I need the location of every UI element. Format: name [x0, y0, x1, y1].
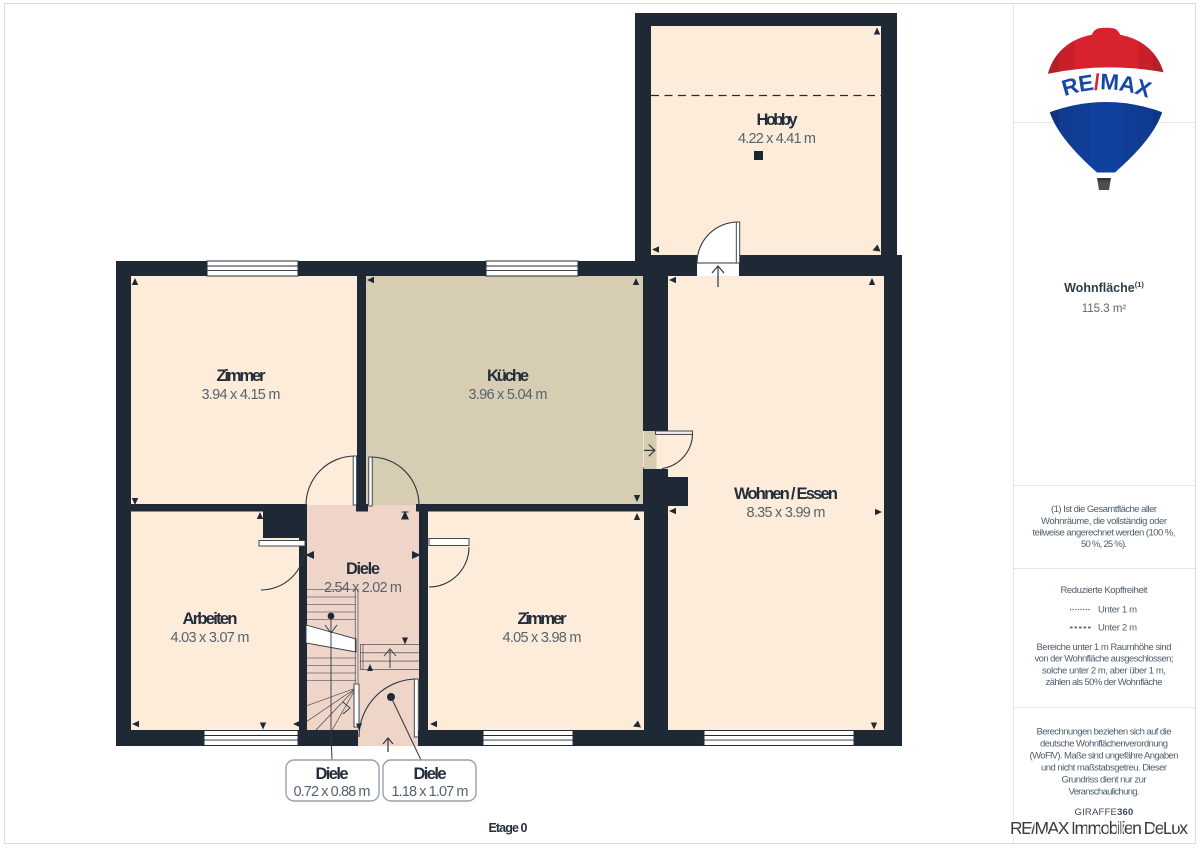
svg-text:RE/MAX Immobilien DeLux: RE/MAX Immobilien DeLux [1010, 818, 1188, 838]
svg-text:teilweise angerechnet werden (: teilweise angerechnet werden (100 %, [1033, 528, 1176, 539]
svg-text:2.54 x 2.02 m: 2.54 x 2.02 m [324, 580, 402, 596]
svg-text:Unter 1 m: Unter 1 m [1098, 605, 1137, 616]
svg-text:4.22 x 4.41 m: 4.22 x 4.41 m [738, 131, 816, 147]
svg-text:Veranschaulichung.: Veranschaulichung. [1069, 787, 1140, 798]
svg-text:Küche: Küche [487, 367, 529, 385]
svg-text:8.35 x 3.99 m: 8.35 x 3.99 m [747, 505, 826, 521]
svg-text:und nicht maßstabsgetreu. Dies: und nicht maßstabsgetreu. Dieser [1041, 763, 1167, 774]
svg-text:solche unter 2 m, aber über 1: solche unter 2 m, aber über 1 m, [1042, 665, 1166, 676]
svg-text:Diele: Diele [316, 765, 349, 783]
svg-text:Wohnräume, die vollständig ode: Wohnräume, die vollständig oder [1041, 516, 1167, 527]
svg-text:Zimmer: Zimmer [217, 367, 267, 385]
svg-text:0.72 x 0.88 m: 0.72 x 0.88 m [294, 784, 371, 800]
svg-text:Diele: Diele [414, 765, 447, 783]
svg-text:Reduzierte Kopffreiheit: Reduzierte Kopffreiheit [1061, 585, 1148, 596]
svg-text:1.18 x 1.07 m: 1.18 x 1.07 m [392, 784, 469, 800]
svg-text:4.03 x 3.07 m: 4.03 x 3.07 m [171, 630, 250, 646]
svg-text:von der Wohnfläche ausgeschlos: von der Wohnfläche ausgeschlossen; [1035, 654, 1174, 665]
svg-text:4.05 x 3.98 m: 4.05 x 3.98 m [503, 630, 582, 646]
svg-text:Grundriss dient nur zur: Grundriss dient nur zur [1062, 775, 1147, 786]
svg-text:Diele: Diele [346, 560, 380, 578]
svg-text:Zimmer: Zimmer [518, 610, 568, 628]
svg-text:3.94 x 4.15 m: 3.94 x 4.15 m [202, 387, 281, 403]
svg-text:Arbeiten: Arbeiten [183, 610, 238, 628]
svg-text:Wohnfläche(1): Wohnfläche(1) [1064, 280, 1144, 295]
svg-text:50 %, 25 %).: 50 %, 25 %). [1081, 539, 1127, 550]
svg-text:zählen als 50% der Wohnfläche: zählen als 50% der Wohnfläche [1046, 677, 1163, 688]
svg-text:GIRAFFE360: GIRAFFE360 [1074, 807, 1133, 818]
svg-text:(WoFlV). Maße sind ungefähre A: (WoFlV). Maße sind ungefähre Angaben [1030, 751, 1179, 762]
svg-text:deutsche Wohnflächenverordnung: deutsche Wohnflächenverordnung [1040, 739, 1168, 750]
svg-text:Bereiche unter 1 m Raumhöhe si: Bereiche unter 1 m Raumhöhe sind [1037, 642, 1172, 653]
svg-text:Wohnen / Essen: Wohnen / Essen [734, 485, 838, 503]
svg-text:Unter 2 m: Unter 2 m [1098, 623, 1137, 634]
svg-text:Hobby: Hobby [757, 111, 799, 129]
svg-text:(1) Ist die Gesamtfläche aller: (1) Ist die Gesamtfläche aller [1051, 504, 1157, 515]
svg-text:115.3 m²: 115.3 m² [1082, 303, 1127, 315]
svg-text:3.96 x 5.04 m: 3.96 x 5.04 m [469, 387, 548, 403]
svg-text:Berechnungen beziehen sich auf: Berechnungen beziehen sich auf die [1037, 727, 1172, 738]
svg-text:Etage 0: Etage 0 [489, 821, 528, 835]
